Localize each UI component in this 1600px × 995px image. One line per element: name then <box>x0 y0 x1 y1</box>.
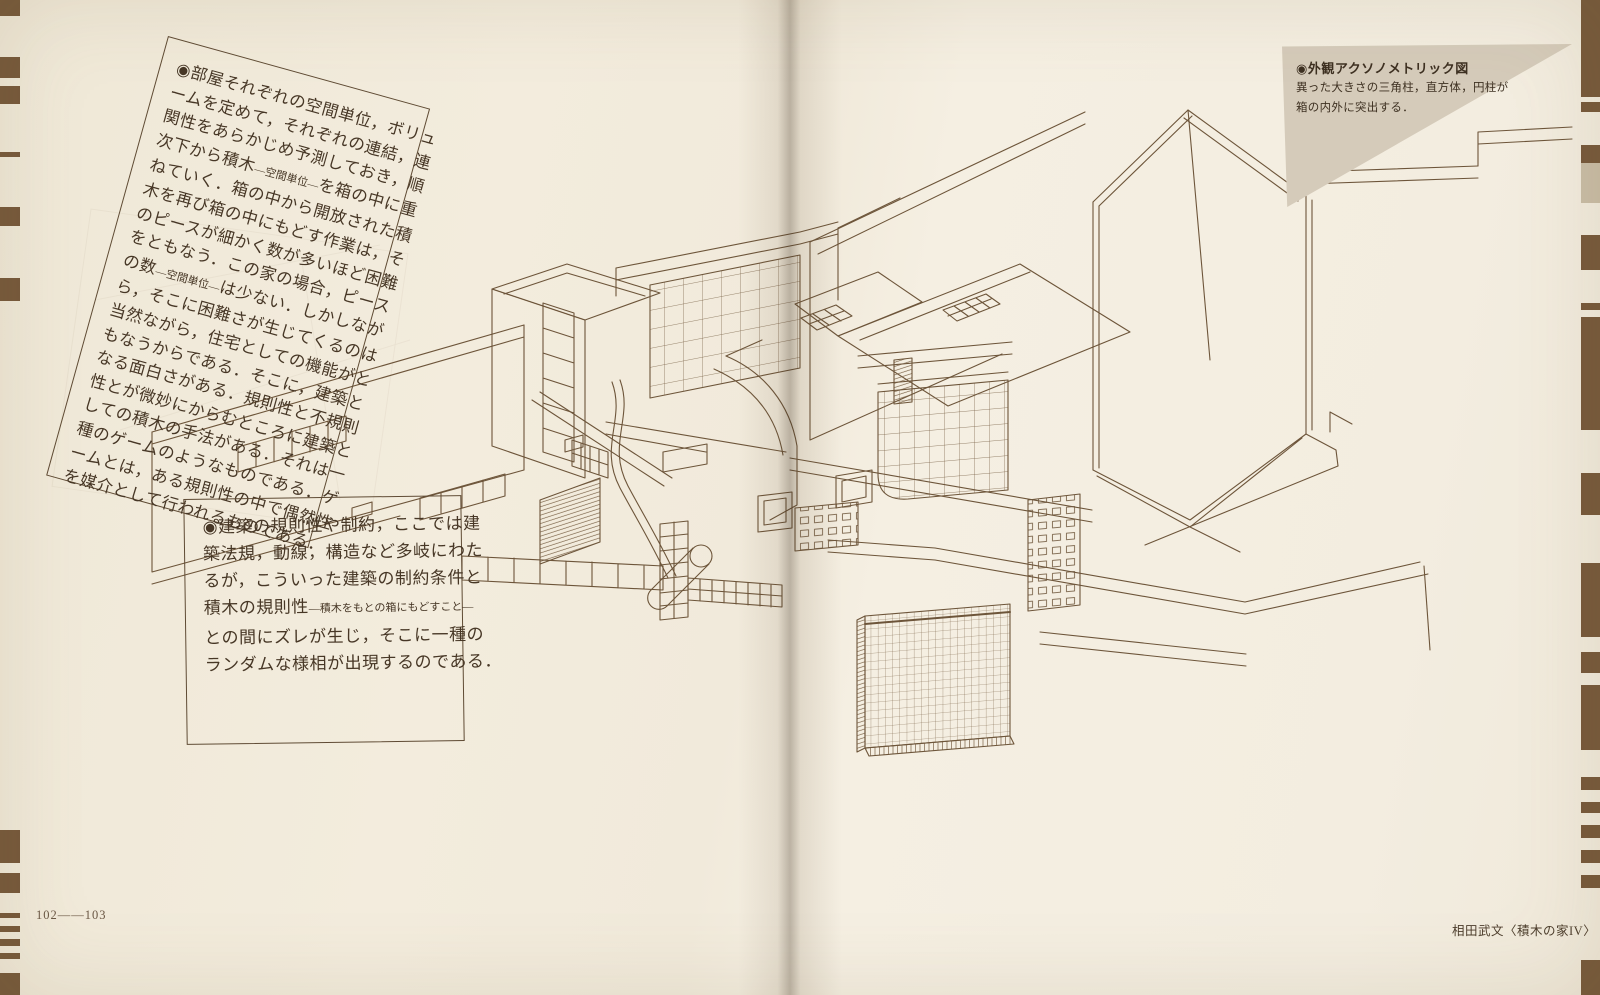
book-spread-scan: ◉外観アクソノメトリック図 異った大きさの三角柱，直方体，円柱が箱の内外に突出す… <box>0 0 1600 995</box>
scan-vignette <box>0 0 1600 995</box>
